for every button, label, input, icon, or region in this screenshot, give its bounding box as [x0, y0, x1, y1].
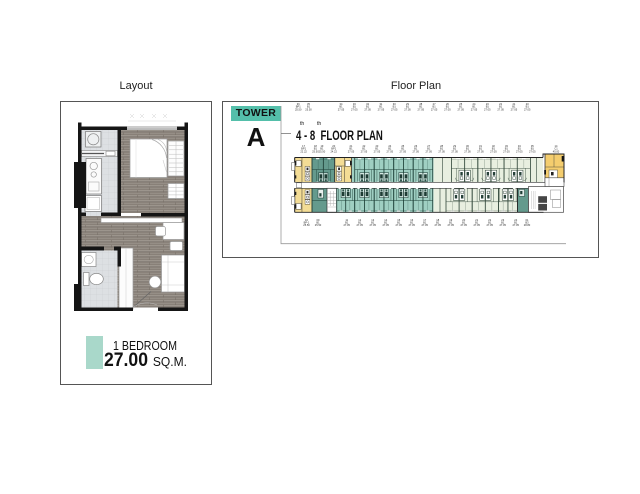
svg-text:27.05: 27.05 — [512, 223, 519, 227]
svg-text:27.05: 27.05 — [486, 223, 493, 227]
svg-text:45.00: 45.00 — [553, 149, 560, 153]
svg-text:27.05: 27.05 — [382, 223, 389, 227]
svg-text:27.05: 27.05 — [412, 149, 419, 153]
svg-text:28.80: 28.80 — [524, 223, 531, 227]
svg-text:27.05: 27.05 — [464, 149, 471, 153]
svg-text:27.05: 27.05 — [444, 107, 451, 111]
svg-text:27.05: 27.05 — [477, 149, 484, 153]
svg-text:27.05: 27.05 — [361, 149, 368, 153]
svg-text:27.05: 27.05 — [490, 149, 497, 153]
svg-text:24.22: 24.22 — [330, 149, 337, 153]
svg-text:27.05: 27.05 — [369, 223, 376, 227]
svg-text:27.05: 27.05 — [356, 223, 363, 227]
svg-text:27.05: 27.05 — [457, 107, 464, 111]
svg-text:27.05: 27.05 — [524, 107, 531, 111]
svg-text:27.05: 27.05 — [471, 107, 478, 111]
svg-text:27.05: 27.05 — [408, 223, 415, 227]
svg-text:27.05: 27.05 — [473, 223, 480, 227]
svg-text:27.05: 27.05 — [348, 149, 355, 153]
svg-text:27.05: 27.05 — [378, 107, 385, 111]
svg-text:27.05: 27.05 — [460, 223, 467, 227]
svg-text:25.50: 25.50 — [303, 223, 310, 227]
svg-text:27.05: 27.05 — [338, 107, 345, 111]
svg-text:27.05: 27.05 — [421, 223, 428, 227]
svg-text:27.05: 27.05 — [391, 107, 398, 111]
svg-text:27.05: 27.05 — [343, 223, 350, 227]
svg-text:27.05: 27.05 — [499, 223, 506, 227]
svg-text:27.05: 27.05 — [431, 107, 438, 111]
svg-text:27.05: 27.05 — [516, 149, 523, 153]
svg-text:25.50: 25.50 — [319, 149, 326, 153]
svg-text:27.05: 27.05 — [497, 107, 504, 111]
svg-text:27.05: 27.05 — [425, 149, 432, 153]
svg-text:27.05: 27.05 — [387, 149, 394, 153]
svg-text:25.50: 25.50 — [315, 223, 322, 227]
svg-text:27.05: 27.05 — [503, 149, 510, 153]
svg-text:27.05: 27.05 — [418, 107, 425, 111]
svg-text:27.05: 27.05 — [404, 107, 411, 111]
svg-text:27.05: 27.05 — [447, 223, 454, 227]
svg-text:27.05: 27.05 — [438, 149, 445, 153]
svg-text:27.05: 27.05 — [529, 149, 536, 153]
svg-text:27.05: 27.05 — [451, 149, 458, 153]
svg-text:27.05: 27.05 — [351, 107, 358, 111]
svg-text:27.05: 27.05 — [395, 223, 402, 227]
svg-text:25.50: 25.50 — [305, 107, 312, 111]
svg-text:22.22: 22.22 — [300, 149, 307, 153]
svg-text:27.05: 27.05 — [400, 149, 407, 153]
svg-text:25.50: 25.50 — [295, 107, 302, 111]
svg-text:27.05: 27.05 — [511, 107, 518, 111]
svg-text:27.05: 27.05 — [434, 223, 441, 227]
svg-text:27.05: 27.05 — [374, 149, 381, 153]
svg-text:27.05: 27.05 — [484, 107, 491, 111]
svg-text:27.05: 27.05 — [364, 107, 371, 111]
